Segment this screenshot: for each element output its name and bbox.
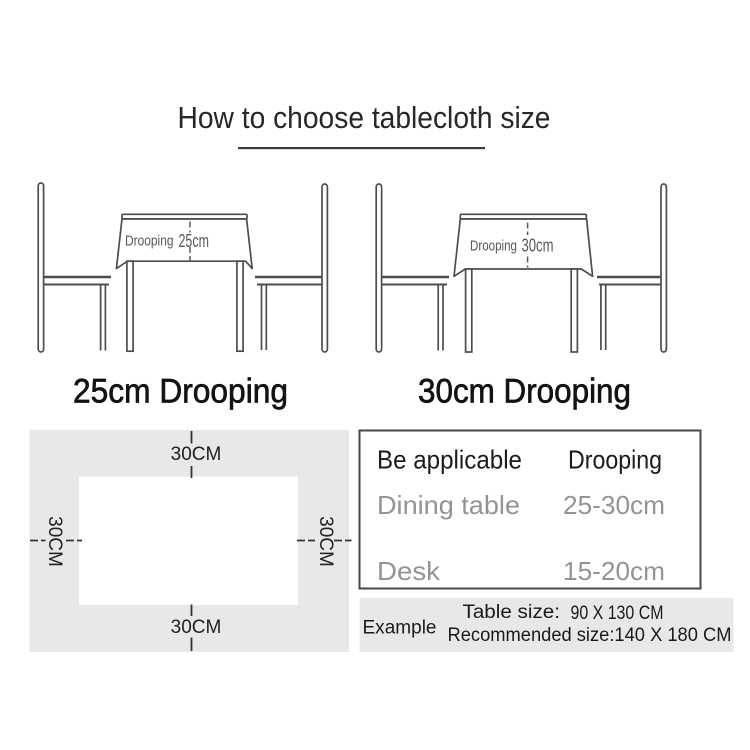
svg-text:Dining table: Dining table — [377, 490, 520, 520]
svg-text:30CM: 30CM — [44, 516, 65, 567]
svg-text:How to choose tablecloth size: How to choose tablecloth size — [178, 100, 551, 135]
svg-text:Table size:: Table size: — [463, 602, 561, 623]
svg-text:90 X 130 CM: 90 X 130 CM — [571, 603, 664, 624]
svg-text:30cm Drooping: 30cm Drooping — [418, 373, 631, 411]
svg-text:25cm Drooping: 25cm Drooping — [73, 373, 288, 411]
svg-text:Drooping: Drooping — [470, 238, 517, 255]
svg-text:Recommended size:140 X 180 CM: Recommended size:140 X 180 CM — [448, 625, 732, 646]
svg-text:30cm: 30cm — [522, 235, 554, 256]
svg-text:Drooping: Drooping — [125, 233, 174, 250]
svg-text:Drooping: Drooping — [568, 445, 662, 475]
svg-text:Be applicable: Be applicable — [377, 445, 522, 475]
svg-text:Desk: Desk — [377, 556, 441, 586]
svg-text:30CM: 30CM — [171, 444, 222, 465]
svg-text:30CM: 30CM — [171, 617, 222, 638]
svg-text:25-30cm: 25-30cm — [563, 490, 665, 520]
svg-text:30CM: 30CM — [315, 516, 336, 567]
svg-text:Example: Example — [363, 617, 437, 639]
svg-text:25cm: 25cm — [179, 230, 210, 251]
svg-text:15-20cm: 15-20cm — [563, 556, 665, 586]
